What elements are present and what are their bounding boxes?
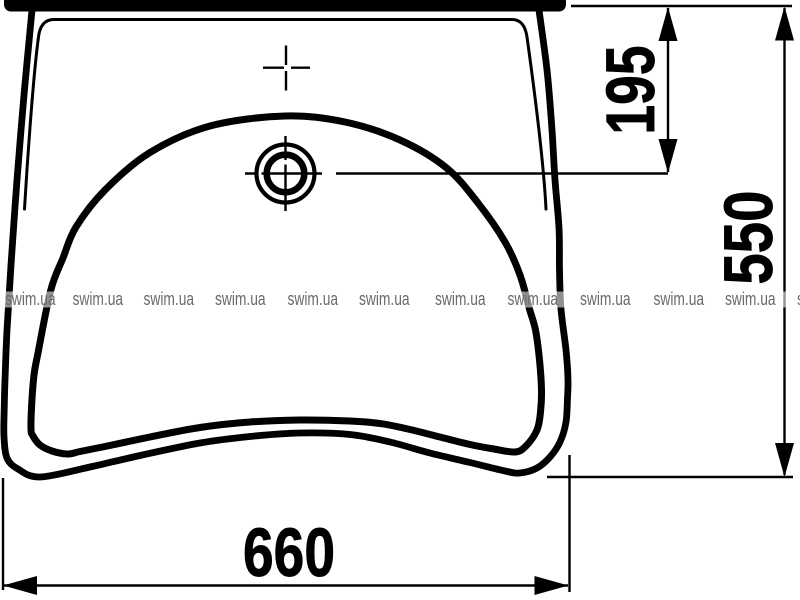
svg-text:swim.ua: swim.ua — [215, 289, 266, 309]
svg-text:swim.ua: swim.ua — [359, 289, 410, 309]
svg-text:swim.ua: swim.ua — [5, 289, 56, 309]
svg-text:swim.ua: swim.ua — [508, 289, 559, 309]
svg-text:swim.ua: swim.ua — [144, 289, 195, 309]
svg-text:swim.ua: swim.ua — [73, 289, 124, 309]
svg-text:swim.ua: swim.ua — [654, 289, 705, 309]
svg-text:195: 195 — [592, 46, 669, 135]
svg-text:swim.ua: swim.ua — [288, 289, 339, 309]
svg-text:660: 660 — [243, 514, 335, 591]
svg-text:550: 550 — [710, 191, 787, 285]
svg-text:swim.ua: swim.ua — [725, 289, 776, 309]
svg-text:swim.ua: swim.ua — [580, 289, 631, 309]
svg-text:swim.ua: swim.ua — [435, 289, 486, 309]
